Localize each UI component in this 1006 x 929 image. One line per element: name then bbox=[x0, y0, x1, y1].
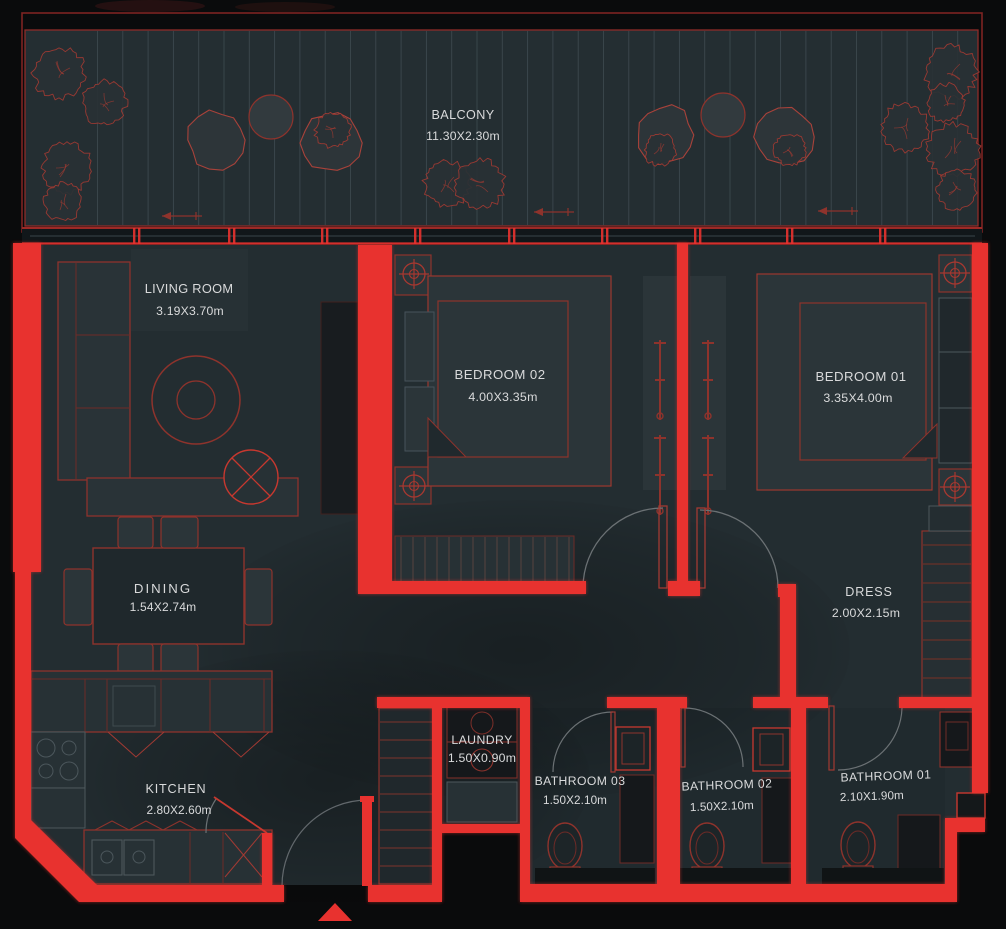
svg-text:3.19X3.70m: 3.19X3.70m bbox=[156, 304, 224, 318]
svg-text:11.30X2.30m: 11.30X2.30m bbox=[426, 129, 500, 143]
svg-text:BALCONY: BALCONY bbox=[432, 108, 495, 122]
svg-text:2.00X2.15m: 2.00X2.15m bbox=[832, 606, 900, 620]
svg-text:DINING: DINING bbox=[134, 581, 192, 596]
svg-text:1.54X2.74m: 1.54X2.74m bbox=[130, 600, 197, 614]
svg-text:DRESS: DRESS bbox=[845, 585, 892, 599]
svg-text:BEDROOM 02: BEDROOM 02 bbox=[455, 367, 546, 382]
svg-text:3.35X4.00m: 3.35X4.00m bbox=[823, 391, 892, 405]
svg-text:BATHROOM 03: BATHROOM 03 bbox=[535, 774, 626, 788]
svg-text:LAUNDRY: LAUNDRY bbox=[451, 733, 512, 747]
svg-text:1.50X2.10m: 1.50X2.10m bbox=[543, 794, 607, 807]
svg-text:1.50X0.90m: 1.50X0.90m bbox=[448, 751, 516, 765]
svg-text:1.50X2.10m: 1.50X2.10m bbox=[690, 799, 754, 814]
svg-text:2.80X2.60m: 2.80X2.60m bbox=[146, 803, 211, 817]
svg-text:LIVING ROOM: LIVING ROOM bbox=[145, 281, 234, 296]
svg-text:2.10X1.90m: 2.10X1.90m bbox=[840, 789, 904, 804]
svg-text:BEDROOM 01: BEDROOM 01 bbox=[816, 369, 907, 384]
svg-text:4.00X3.35m: 4.00X3.35m bbox=[468, 390, 537, 404]
svg-text:KITCHEN: KITCHEN bbox=[146, 782, 207, 796]
